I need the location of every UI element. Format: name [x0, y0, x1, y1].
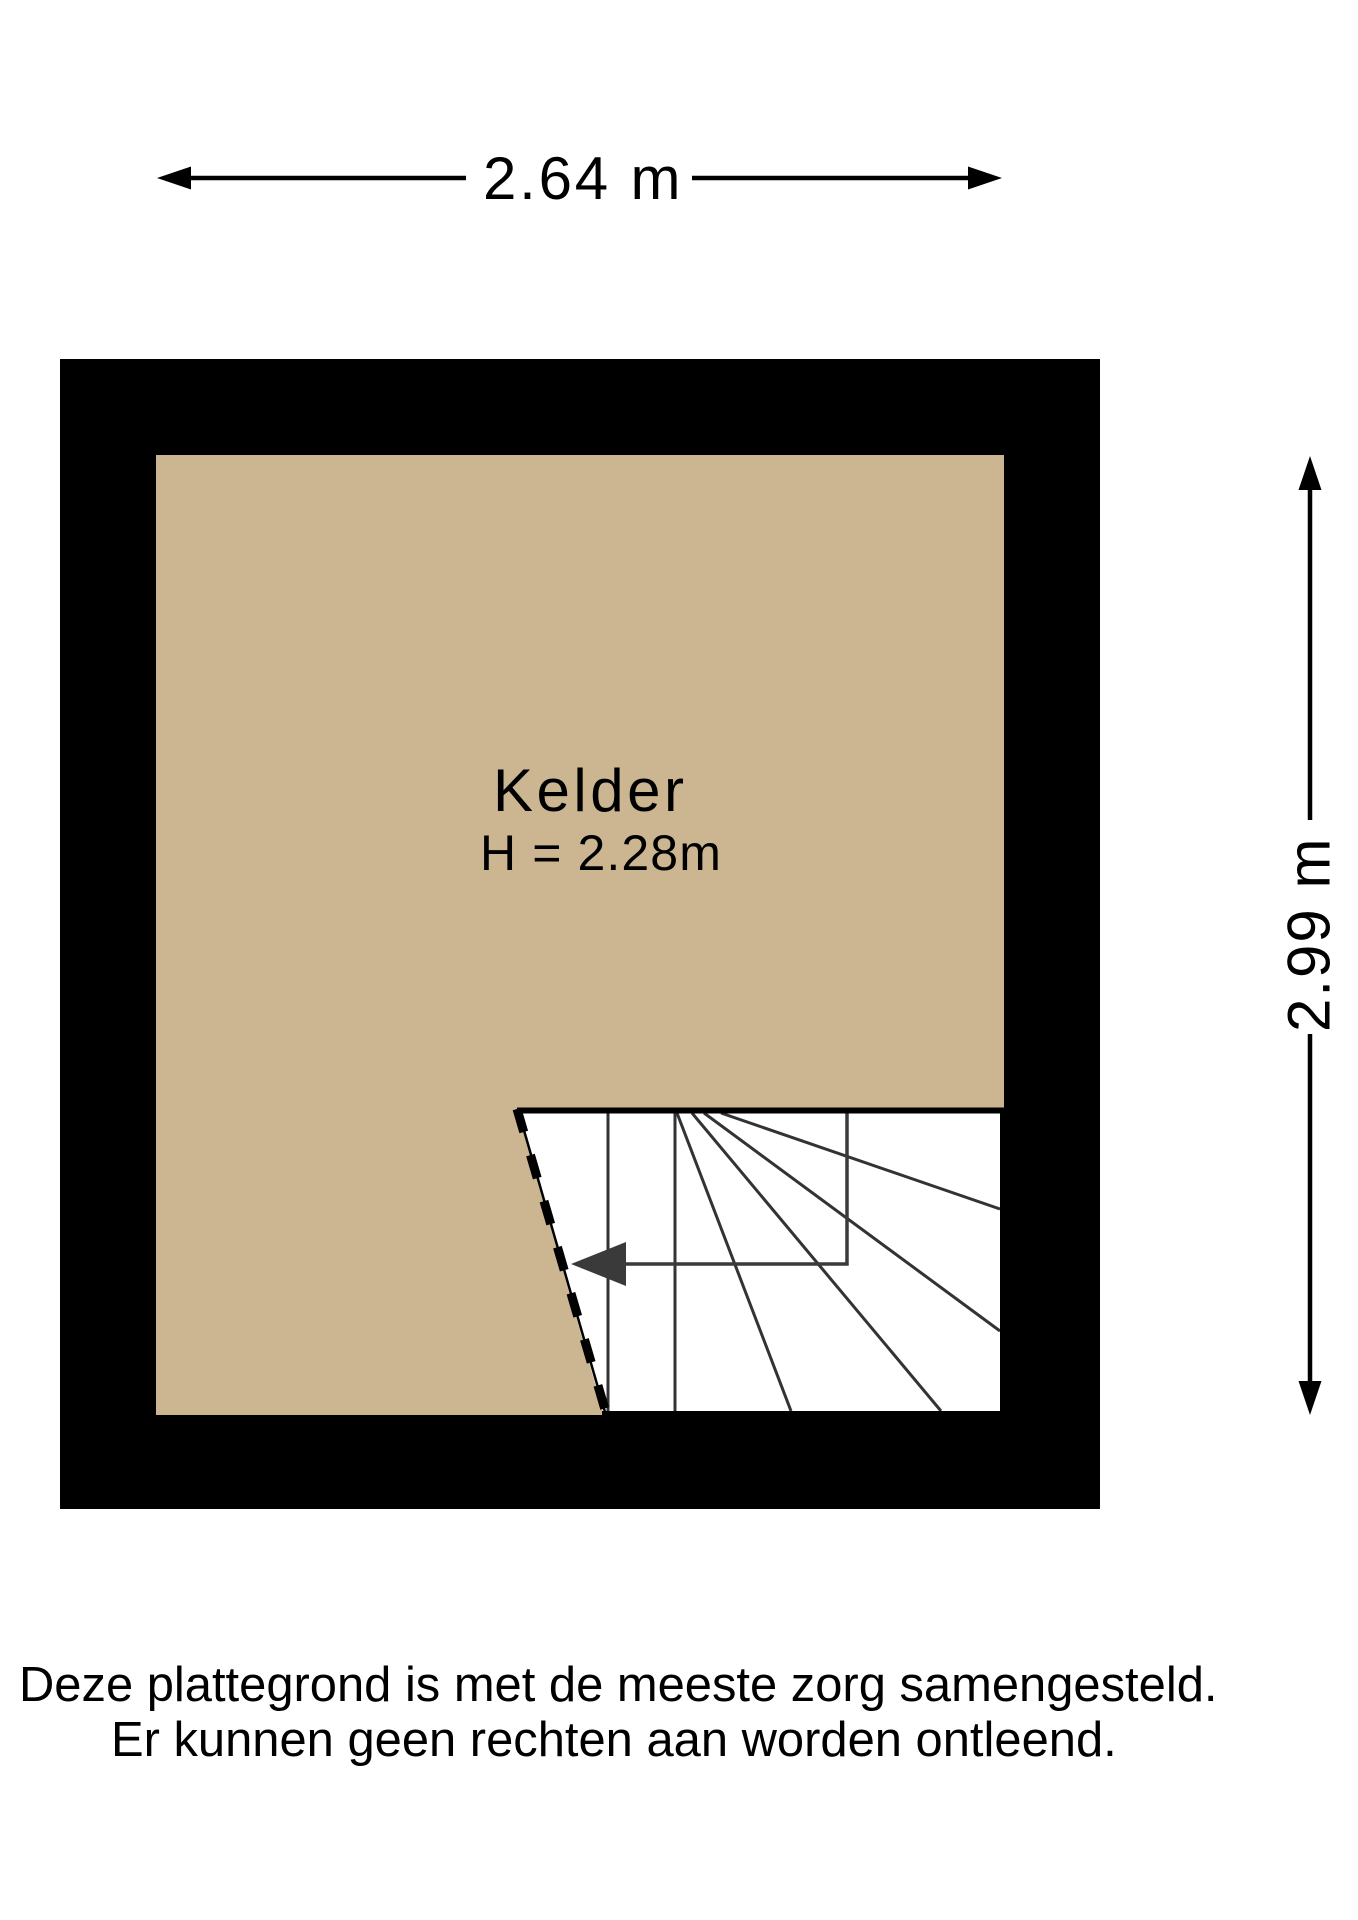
svg-text:2.64 m: 2.64 m: [483, 145, 683, 212]
svg-text:Kelder: Kelder: [493, 757, 687, 824]
svg-text:Er kunnen geen rechten aan wor: Er kunnen geen rechten aan worden ontlee…: [111, 1713, 1117, 1767]
svg-text:H = 2.28m: H = 2.28m: [480, 825, 722, 881]
svg-text:Deze plattegrond is met de mee: Deze plattegrond is met de meeste zorg s…: [19, 1658, 1217, 1712]
svg-text:2.99 m: 2.99 m: [1276, 837, 1343, 1032]
